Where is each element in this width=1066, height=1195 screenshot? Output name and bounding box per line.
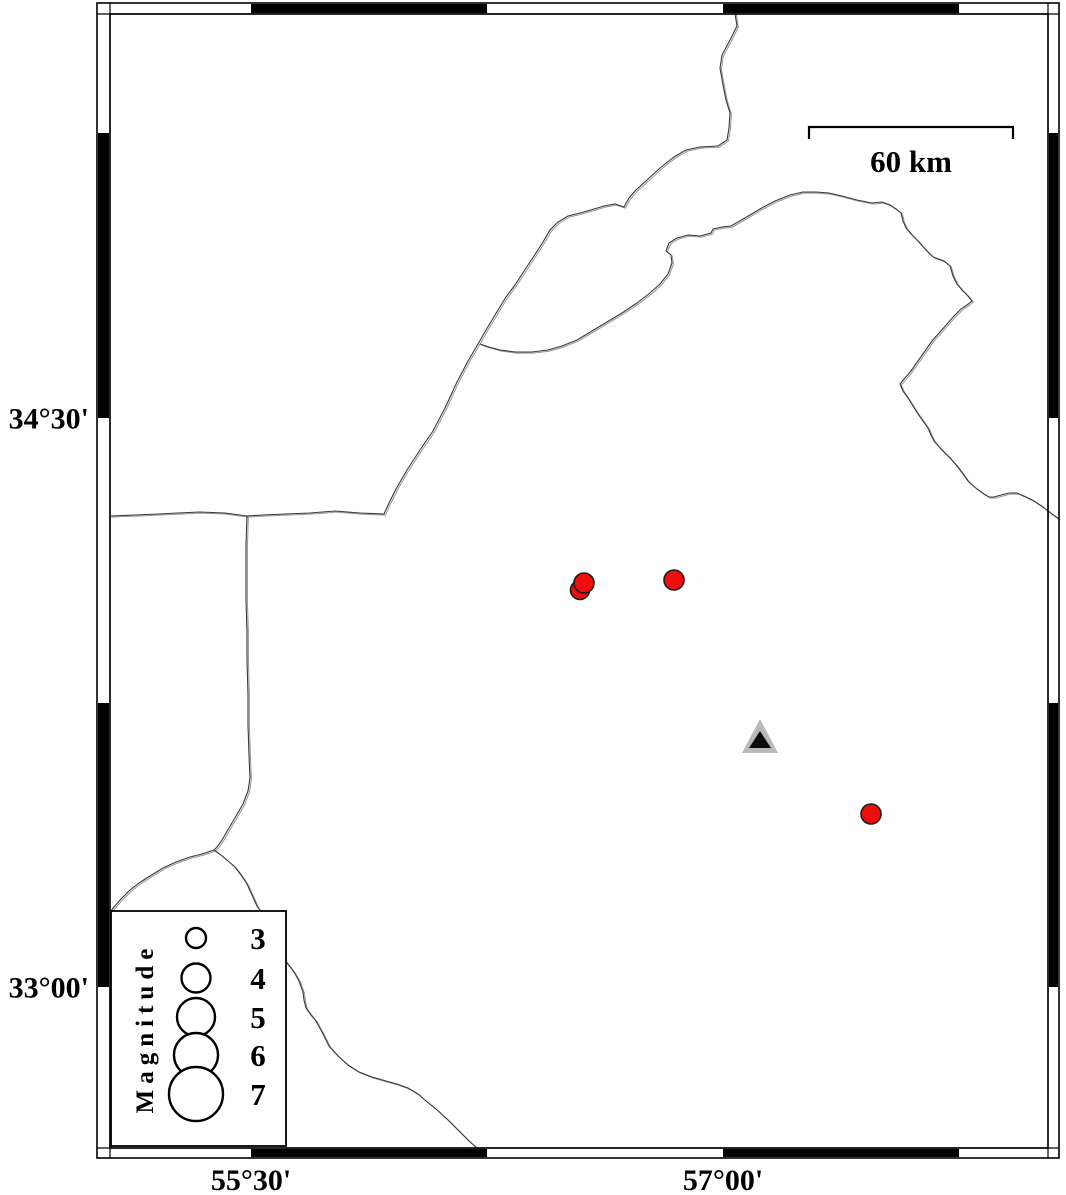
earthquake-epicenters-layer bbox=[571, 570, 882, 824]
magnitude-legend: Magnitude 34567 bbox=[111, 911, 286, 1146]
frame-segment-top bbox=[723, 4, 959, 13]
lat-label-lower: 33°00' bbox=[9, 972, 89, 1005]
scale-bar-bracket bbox=[809, 127, 1013, 139]
frame-segment-left bbox=[98, 133, 109, 418]
legend-magnitude-circle bbox=[182, 964, 211, 993]
legend-magnitude-label: 3 bbox=[250, 921, 266, 956]
boundary-line-shadow bbox=[112, 851, 215, 912]
frame-segment-bottom bbox=[723, 1149, 959, 1157]
lon-label-right: 57°00' bbox=[683, 1164, 763, 1195]
frame-segment-top bbox=[251, 4, 487, 13]
legend-magnitude-label: 5 bbox=[250, 1000, 266, 1035]
seismicity-map-figure: 60 km Magnitude 34567 34°30' 33°00' 55°3… bbox=[0, 0, 1066, 1195]
boundary-line bbox=[214, 516, 250, 850]
earthquake-marker bbox=[861, 804, 881, 824]
legend-magnitude-label: 4 bbox=[250, 961, 266, 996]
boundary-line-shadow bbox=[481, 193, 1060, 520]
boundary-line bbox=[480, 192, 1059, 519]
frame-segment-bottom bbox=[251, 1149, 487, 1157]
boundary-line bbox=[111, 850, 214, 911]
boundary-line bbox=[110, 3, 737, 516]
legend-magnitude-label: 7 bbox=[250, 1077, 266, 1112]
frame-segment-right bbox=[1049, 703, 1058, 987]
lon-label-left: 55°30' bbox=[211, 1164, 291, 1195]
legend-magnitude-circle bbox=[177, 998, 215, 1036]
boundary-line-shadow bbox=[111, 4, 738, 517]
frame-segment-right bbox=[1049, 133, 1058, 418]
scale-bar: 60 km bbox=[809, 127, 1013, 179]
scale-bar-label: 60 km bbox=[870, 144, 952, 179]
lat-label-upper: 34°30' bbox=[9, 403, 89, 436]
earthquake-marker bbox=[664, 570, 684, 590]
legend-magnitude-circle bbox=[186, 928, 206, 948]
station-marker bbox=[742, 719, 778, 753]
legend-magnitude-label: 6 bbox=[250, 1038, 266, 1073]
earthquake-marker bbox=[574, 573, 594, 593]
map-canvas: 60 km Magnitude 34567 34°30' 33°00' 55°3… bbox=[0, 0, 1066, 1195]
legend-magnitude-circle bbox=[169, 1067, 223, 1121]
frame-segment-left bbox=[98, 703, 109, 987]
legend-title: Magnitude bbox=[132, 943, 159, 1114]
